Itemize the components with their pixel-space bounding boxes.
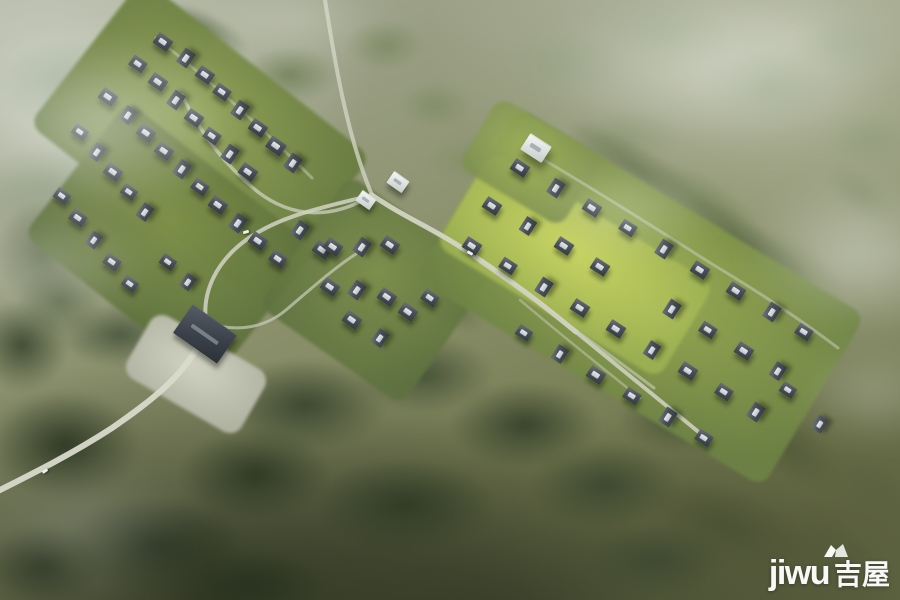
jiwu-logo-watermark: jiwu 吉屋: [769, 556, 890, 590]
clouds-layer: [0, 0, 900, 600]
cloud: [0, 200, 155, 330]
origami-bird-icon: [823, 544, 849, 558]
cloud: [200, 0, 400, 60]
aerial-rendering: jiwu 吉屋: [0, 0, 900, 600]
cloud: [0, 35, 245, 215]
watermark-brand-latin: jiwu: [769, 556, 829, 590]
watermark-brand-cjk: 吉屋: [834, 561, 890, 589]
cloud: [533, 150, 723, 260]
cloud: [0, 465, 210, 595]
cloud: [795, 345, 900, 445]
cloud: [745, 180, 900, 330]
cloud: [540, 0, 900, 155]
